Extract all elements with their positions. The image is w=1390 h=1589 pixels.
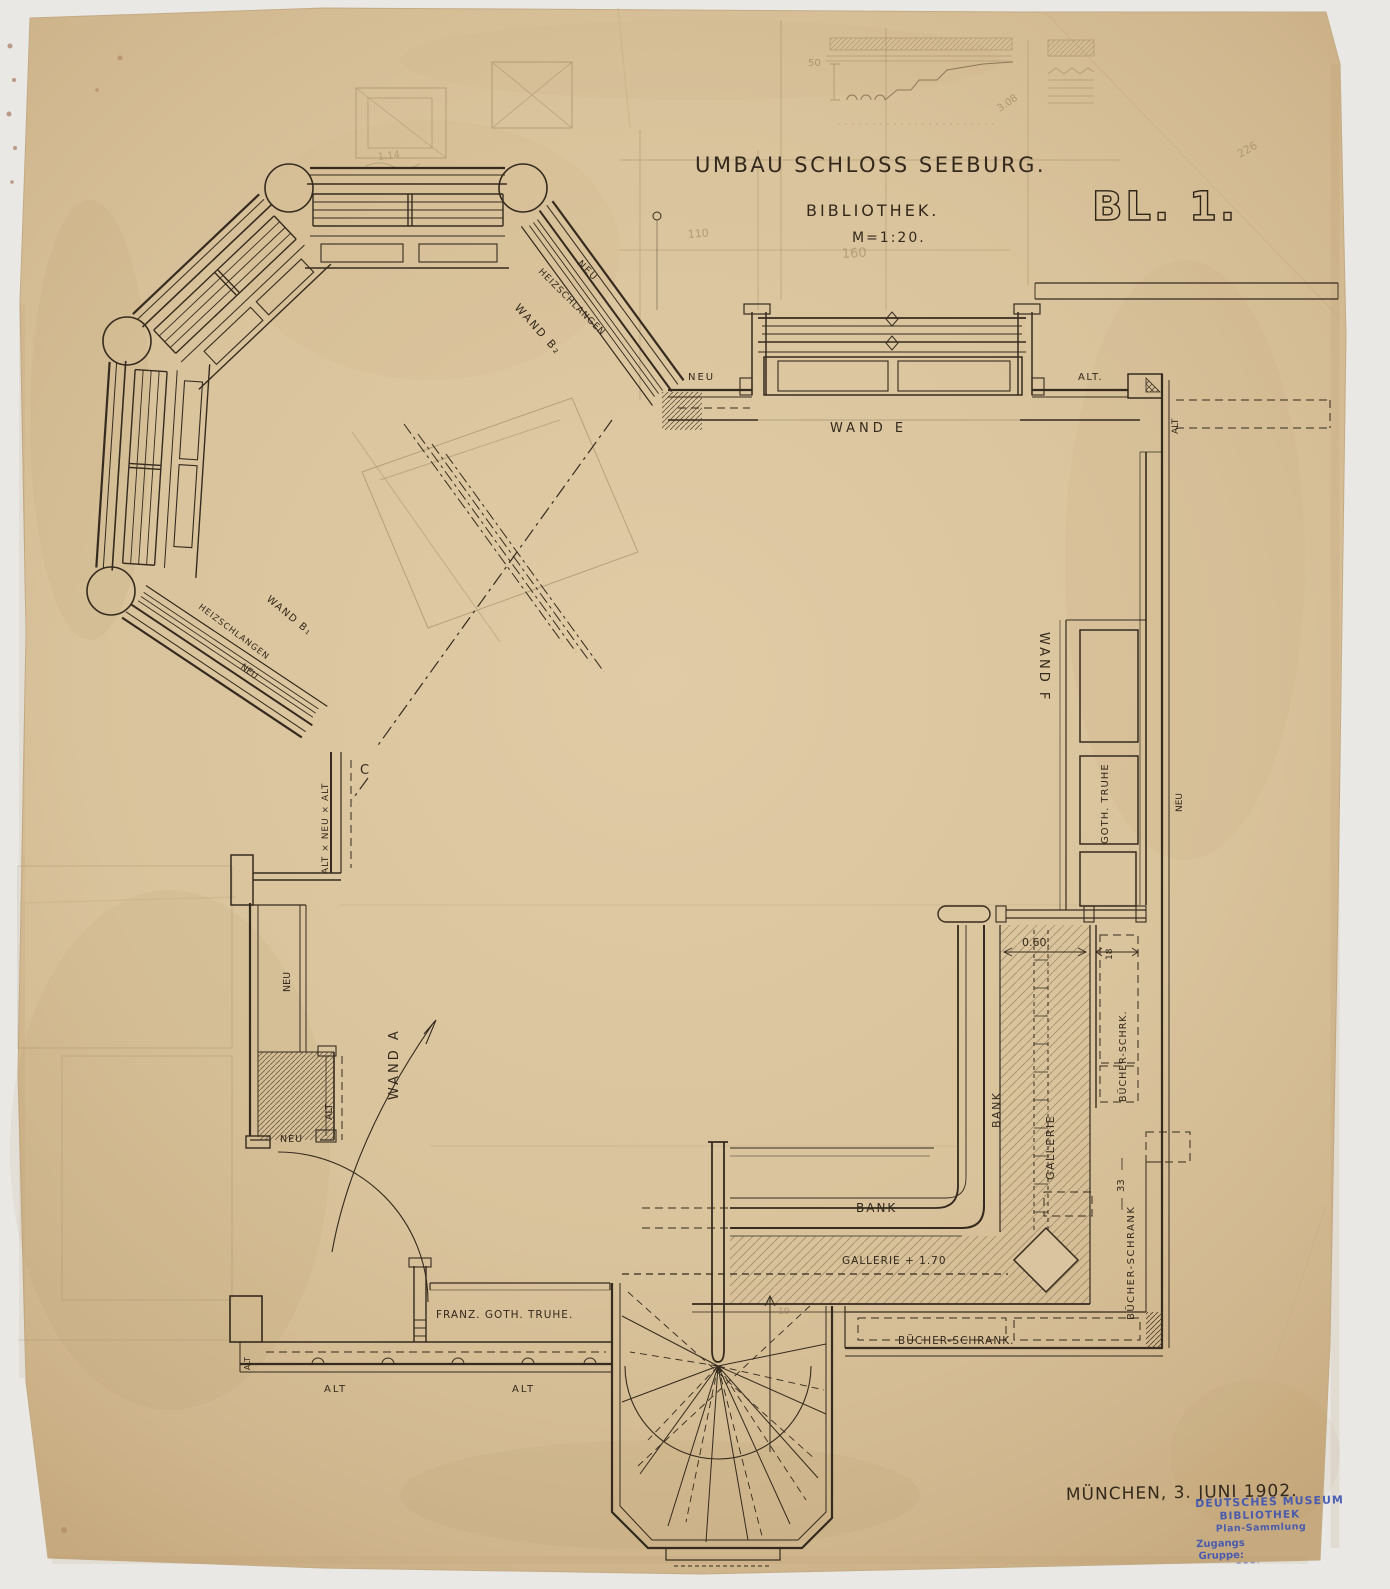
label-bank-bottom: BANK xyxy=(856,1201,897,1215)
label-alt-wand-e: ALT. xyxy=(1078,372,1103,383)
stamp-line5: Gruppe: xyxy=(1198,1550,1244,1562)
label-neu-left-upper: NEU xyxy=(282,972,293,992)
label-alt-bottom-corner: ALT xyxy=(243,1357,252,1370)
dim-shelf-depth: 18 xyxy=(1105,948,1115,960)
label-neu-left-lower: NEU xyxy=(280,1134,303,1145)
label-franz-goth-truhe: FRANZ. GOTH. TRUHE. xyxy=(436,1309,573,1321)
plan-title-line2: BIBLIOTHEK. xyxy=(806,201,939,220)
label-bank-right: BANK xyxy=(990,1091,1003,1128)
label-alt-bottom-2: ALT xyxy=(512,1384,535,1395)
dim-sketch-50: 50 xyxy=(808,58,821,69)
label-alt-bottom-1: ALT xyxy=(324,1384,347,1395)
label-alt-neu-alt: ALT × NEU × ALT xyxy=(321,783,331,874)
plan-title-line1: UMBAU SCHLOSS SEEBURG. xyxy=(695,153,1046,177)
label-gallerie-height: GALLERIE + 1.70 xyxy=(842,1255,947,1267)
stamp-line2: BIBLIOTHEK xyxy=(1219,1508,1300,1522)
pencil-10: 10 xyxy=(778,1307,790,1317)
label-alt-right-corner: ALT xyxy=(1171,418,1181,434)
label-goth-truhe: GOTH. TRUHE xyxy=(1100,763,1111,844)
sheet-number: BL. 1. xyxy=(1092,184,1238,230)
label-buecher-schrank-right: BÜCHER-SCHRANK xyxy=(1124,1206,1137,1320)
stamp-line4: Zugangs xyxy=(1196,1538,1245,1550)
pencil-114: 1.14 xyxy=(377,150,400,163)
plan-scale: M=1:20. xyxy=(852,230,926,246)
label-neu-wand-e: NEU xyxy=(688,372,715,383)
label-buecher-schrank-bottom: BÜCHER-SCHRANK. xyxy=(898,1334,1014,1347)
label-wand-a: WAND A xyxy=(387,1028,402,1100)
dim-gallery-width: 0.60. xyxy=(1022,936,1050,949)
label-gallerie-right: GALLERIE xyxy=(1044,1115,1057,1180)
label-wand-e: WAND E xyxy=(830,421,907,436)
wall-corner-hatch-b2e xyxy=(662,392,702,430)
label-neu-wand-f: NEU xyxy=(1175,793,1185,812)
plan-drawing: UMBAU SCHLOSS SEEBURG. BIBLIOTHEK. M=1:2… xyxy=(0,0,1390,1589)
label-section-c: C xyxy=(360,763,369,778)
pencil-110: 110 xyxy=(687,227,709,241)
label-wand-f: WAND F xyxy=(1036,632,1051,702)
label-alt-left: ALT xyxy=(324,1104,335,1120)
label-buecher-schrk-right: BÜCHER-SCHRK. xyxy=(1118,1010,1129,1102)
dim-33: 33 xyxy=(1116,1179,1127,1192)
scanned-plan-sheet: UMBAU SCHLOSS SEEBURG. BIBLIOTHEK. M=1:2… xyxy=(0,0,1390,1589)
pencil-160: 160 xyxy=(841,246,867,262)
